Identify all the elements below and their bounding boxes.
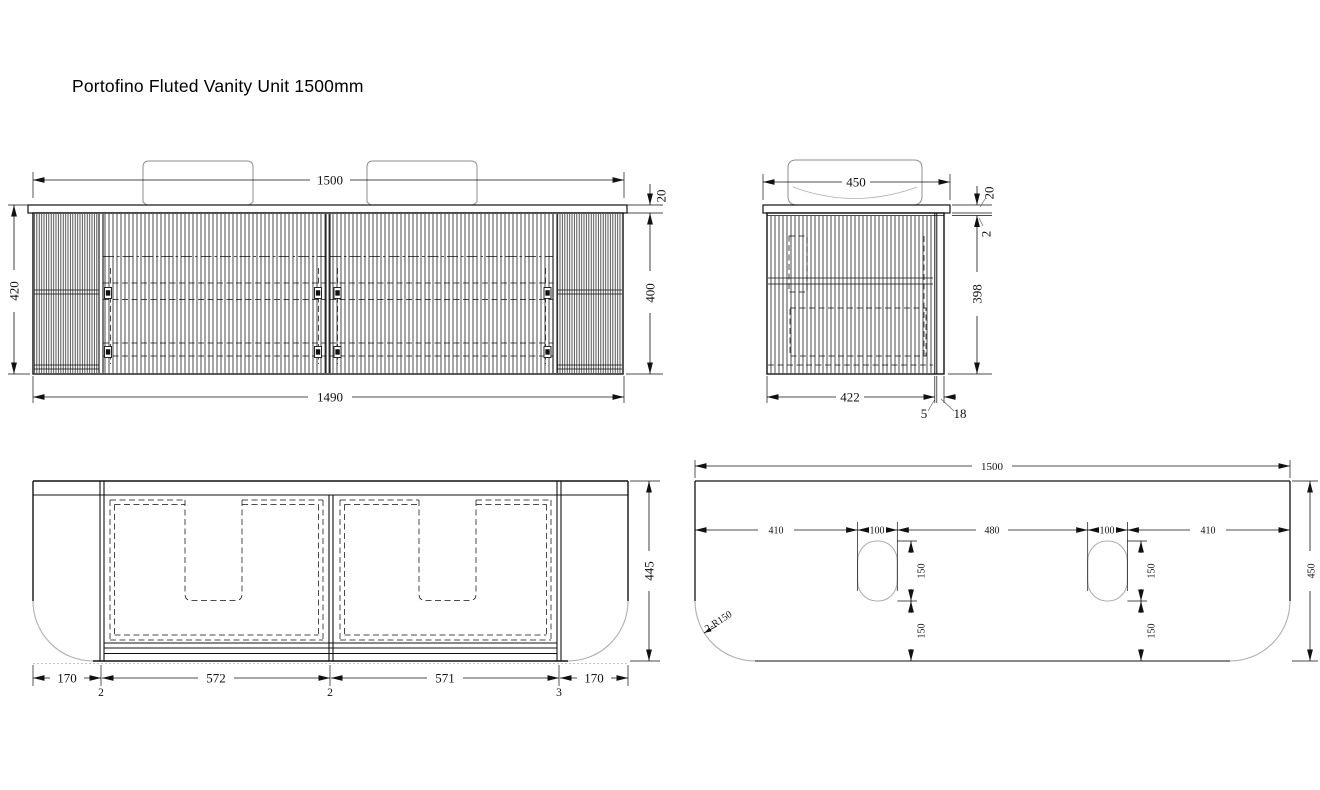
plan-corner-arc-left [695,601,755,661]
dim-front-top-thickness: 20 [654,190,669,203]
side-countertop [763,205,950,213]
front-countertop [28,205,627,213]
plan-dimensions-hole-right: 150 150 [1127,541,1157,661]
dim-side-back-panel: 18 [954,406,967,421]
dim-front-overall-height: 420 [7,281,22,301]
dim-plan-overall-width: 1500 [981,461,1004,473]
dim-front-overall-width: 1500 [317,173,343,188]
dim-front-cabinet-height: 400 [643,283,658,303]
plan-basin-holes [858,541,1128,601]
plan-dimensions-hole-left: 150 150 [897,541,927,661]
dim-plan-left-hole-rear: 150 [917,624,928,639]
dim-plan-left-hole-depth: 150 [917,564,928,579]
front-basin-left [143,161,253,205]
plan-corner-arc-right [1230,601,1290,661]
dim-plan-left-offset: 410 [769,526,784,537]
dim-side-cabinet-depth: 422 [840,390,860,405]
side-fluting [768,216,935,373]
dim-plan-center-span: 480 [985,526,1000,537]
front-basin-right [367,161,477,205]
front-cabinet [33,213,623,374]
carcass-dividers [100,481,561,661]
dim-carcass-left-gap: 2 [98,687,104,699]
dim-carcass-left-overhang: 170 [57,671,77,686]
dim-side-depth: 450 [846,175,866,190]
dim-side-back-gap: 5 [921,406,928,421]
carcass-outline [33,481,628,664]
dim-plan-depth: 450 [1307,564,1318,579]
plan-corner-radius-callout: 2-R150 [703,609,734,635]
side-cabinet [767,213,944,374]
plan-basin-hole-left [858,541,898,601]
drawing-title: Portofino Fluted Vanity Unit 1500mm [72,76,364,97]
front-right-wing-fluting [557,214,622,373]
dim-plan-corner-radius: 2-R150 [703,609,734,635]
dim-carcass-height: 445 [642,561,657,581]
carcass-door-cutout-left [110,500,323,640]
front-left-wing-fluting [34,214,99,373]
front-elevation-view: 1500 420 20 400 1490 [0,140,700,430]
dim-carcass-right-gap: 3 [556,687,562,699]
dim-carcass-right-door: 571 [435,671,455,686]
dim-carcass-right-overhang: 170 [584,671,604,686]
dim-carcass-mid-gap: 2 [327,687,333,699]
dim-front-cabinet-width: 1490 [317,390,343,405]
plan-outline [695,481,1290,661]
dim-plan-left-hole-width: 100 [870,526,885,537]
side-section-view: 450 20 2 398 422 5 18 [730,140,1020,430]
dim-plan-right-hole-depth: 150 [1147,564,1158,579]
front-doors-fluting [103,214,553,373]
carcass-bottom-rails [104,643,557,654]
carcass-corner-arc-left [33,601,93,661]
dim-side-top-thickness: 20 [982,187,997,200]
top-plan-view: 1500 410 100 480 100 410 150 150 [680,450,1320,710]
dim-plan-right-hole-rear: 150 [1147,624,1158,639]
plan-dimensions-top: 1500 [695,460,1290,478]
carcass-corner-arc-right [568,601,628,661]
dim-carcass-left-door: 572 [206,671,226,686]
dim-plan-right-offset: 410 [1201,526,1216,537]
dim-side-top-gap: 2 [979,231,994,238]
plan-dimensions-chain: 410 100 480 100 410 [695,522,1290,591]
plan-dimension-depth: 450 [1292,481,1318,661]
dim-plan-right-hole-width: 100 [1100,526,1115,537]
carcass-door-cutout-right [340,500,551,640]
carcass-dimensions: 445 170 572 571 170 2 2 3 [33,481,660,699]
dim-side-cabinet-height: 398 [970,284,985,304]
plan-basin-hole-right [1088,541,1128,601]
carcass-elevation-view: 445 170 572 571 170 2 2 3 [0,450,700,710]
